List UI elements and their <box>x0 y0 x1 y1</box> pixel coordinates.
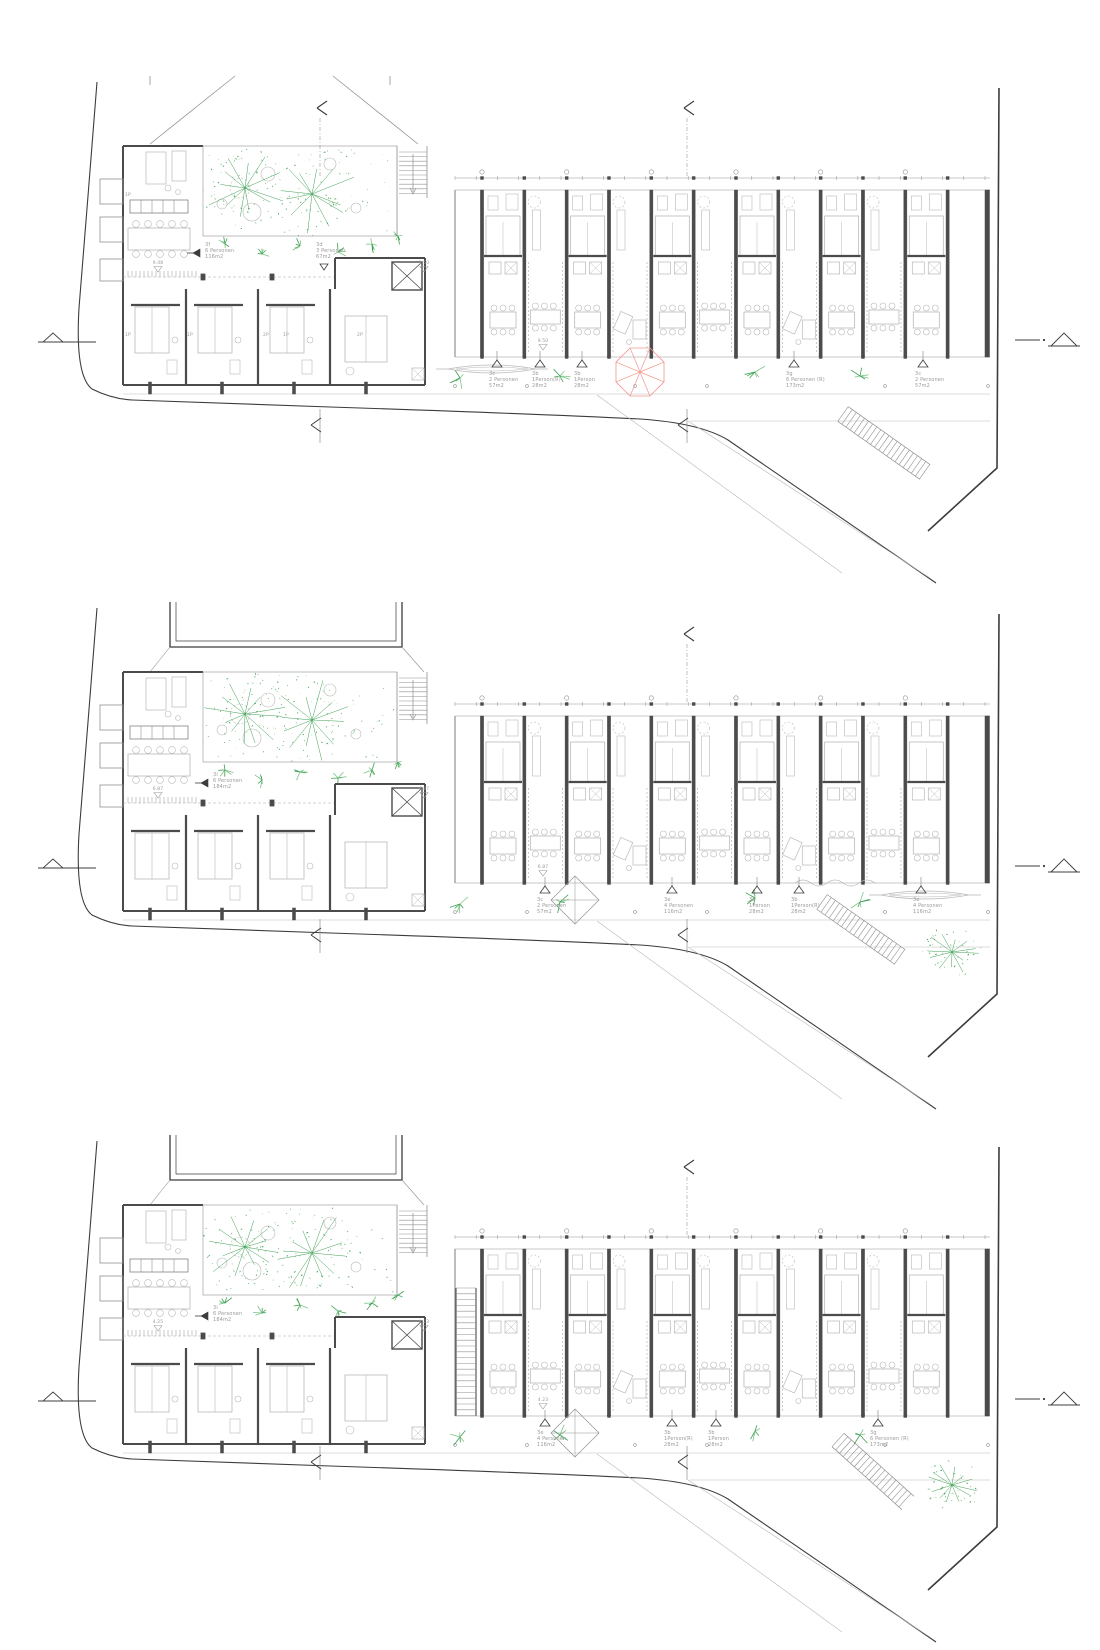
bollard <box>526 1444 529 1447</box>
table <box>913 1371 939 1387</box>
plaza-tree <box>952 949 976 952</box>
chair <box>660 305 666 311</box>
chair <box>932 329 938 335</box>
party-wall <box>946 1249 949 1416</box>
plant-stroke <box>220 770 225 776</box>
garden-speckle <box>231 756 232 757</box>
chair <box>145 777 152 784</box>
chair <box>133 221 140 228</box>
plant-stroke <box>450 1434 460 1437</box>
crossing-rung <box>858 421 868 436</box>
dresser <box>845 194 857 210</box>
garden-tree <box>294 1282 295 1283</box>
neighbor-building <box>150 602 424 672</box>
long-table <box>530 310 560 324</box>
garden-speckle <box>277 682 278 683</box>
garden-tree <box>347 1231 348 1232</box>
unit-area: 184m2 <box>213 784 231 790</box>
garden-speckle <box>372 755 373 756</box>
garden-tree <box>303 1231 312 1253</box>
garden-speckle <box>307 229 308 230</box>
neighbor-corner <box>150 1180 170 1205</box>
chair <box>720 851 726 857</box>
section-arrow-icon <box>317 101 327 108</box>
pier <box>221 382 224 394</box>
plaza-tree <box>962 971 963 972</box>
bath-fixture <box>912 788 924 800</box>
chair <box>720 325 726 331</box>
dresser <box>657 722 667 736</box>
table <box>744 838 770 854</box>
crossing-rung <box>895 1490 907 1503</box>
dresser <box>742 196 752 210</box>
chair <box>914 831 920 837</box>
crossing-rung <box>879 436 889 451</box>
balcony <box>100 217 123 242</box>
garden-speckle <box>342 1248 343 1249</box>
stone <box>351 203 361 213</box>
sofa <box>172 677 186 707</box>
crossing-rung <box>858 1457 870 1470</box>
road-edge <box>78 82 936 583</box>
bath-fixture <box>828 788 840 800</box>
grid-bubble <box>734 1229 738 1233</box>
chair <box>157 1280 164 1287</box>
grid-dot <box>777 1415 780 1418</box>
bath-fixture <box>489 1321 501 1333</box>
chair <box>871 303 877 309</box>
plant-stroke <box>460 374 463 378</box>
grid-dot <box>692 177 695 180</box>
garden-tree <box>245 188 249 210</box>
chair <box>889 829 895 835</box>
plaza-tree <box>933 1481 934 1482</box>
plant-stroke <box>294 1305 300 1306</box>
shelf <box>617 1269 625 1309</box>
garden-tree <box>272 1256 273 1257</box>
garden-speckle <box>262 680 263 681</box>
right-slab <box>455 170 990 359</box>
chair <box>830 831 836 837</box>
right-marker-dot <box>1043 339 1044 340</box>
stone <box>324 158 336 170</box>
garden-boundary <box>203 146 397 236</box>
shelf <box>532 1269 540 1309</box>
chair <box>871 1384 877 1390</box>
floor-plan-middle: 3i6 Personen184m23c2 Personen57m23e4 Per… <box>38 602 1080 1109</box>
grid-dot <box>946 356 949 359</box>
garden-tree <box>346 1256 347 1257</box>
chair <box>914 855 920 861</box>
crossing-rail <box>838 421 920 479</box>
chair <box>145 1310 152 1317</box>
grid-dot <box>819 177 822 180</box>
plant-pot <box>867 196 879 208</box>
plant-pot <box>613 196 625 208</box>
party-wall <box>777 190 780 357</box>
sideboard <box>130 726 188 739</box>
chair <box>509 855 515 861</box>
chair <box>302 1419 312 1433</box>
chair <box>181 777 188 784</box>
chair <box>509 1364 515 1370</box>
garden-tree <box>209 1241 245 1247</box>
plant-stroke <box>454 1437 460 1445</box>
garden-speckle <box>277 1253 278 1254</box>
garden-speckle <box>328 1250 329 1251</box>
garden-tree <box>317 1271 318 1272</box>
unit-area: 116m2 <box>205 254 223 260</box>
grid-dot <box>650 356 653 359</box>
chair <box>541 829 547 835</box>
right-slab <box>455 1229 990 1418</box>
elevation-value: 4.23 <box>538 1397 549 1403</box>
garden-speckle <box>341 713 342 714</box>
chair <box>576 831 582 837</box>
pier <box>270 800 274 806</box>
chair <box>532 303 538 309</box>
chair <box>181 251 188 258</box>
unit-area: 57m2 <box>489 383 504 389</box>
garden-speckle <box>366 756 367 757</box>
chair <box>754 305 760 311</box>
garden-speckle <box>386 1269 387 1270</box>
unit-area: 57m2 <box>915 383 930 389</box>
garden-tree <box>337 202 338 203</box>
chair <box>669 1388 675 1394</box>
plant-stroke <box>855 376 860 377</box>
plant-stroke <box>367 1303 372 1310</box>
grid-dot <box>607 882 610 885</box>
grid-bubble <box>649 1229 653 1233</box>
plant-stroke <box>396 236 398 240</box>
garden-speckle <box>294 165 295 166</box>
garden-tree <box>283 1251 312 1253</box>
chair <box>923 855 929 861</box>
grid-dot <box>565 1236 568 1239</box>
unit-triangle-icon <box>492 360 502 367</box>
chair <box>576 855 582 861</box>
table <box>490 1371 516 1387</box>
garden-speckle <box>373 728 374 729</box>
chair <box>594 329 600 335</box>
path-edge <box>688 947 930 1104</box>
chair <box>669 329 675 335</box>
plant-stroke <box>860 1435 867 1443</box>
lounge-chair <box>802 1379 815 1398</box>
plaza-tree <box>952 952 962 970</box>
crossing-rail <box>848 407 930 465</box>
grid-dot <box>777 882 780 885</box>
chair <box>669 855 675 861</box>
grid-dot <box>565 356 568 359</box>
garden-tree <box>327 223 328 224</box>
garden-tree <box>360 1252 361 1253</box>
shelf <box>532 210 540 250</box>
chair <box>848 855 854 861</box>
stool <box>796 340 801 345</box>
garden-tree <box>300 202 301 203</box>
stone <box>351 1262 361 1272</box>
plant-stroke <box>262 254 269 256</box>
chair <box>720 1384 726 1390</box>
bath-fixture <box>574 788 586 800</box>
garden-tree <box>354 730 355 731</box>
plant-stroke <box>398 235 402 236</box>
shelf <box>702 736 710 776</box>
table <box>829 1371 855 1387</box>
plant-stroke <box>224 764 225 770</box>
unit-area: 67m2 <box>316 254 331 260</box>
party-wall <box>904 716 907 883</box>
shelf <box>871 736 879 776</box>
plant-pot <box>613 722 625 734</box>
plant-stroke <box>257 1306 262 1313</box>
balcony <box>100 785 123 807</box>
garden-tree <box>225 714 245 723</box>
dresser <box>675 1253 687 1269</box>
garden-tree <box>287 194 312 199</box>
stool <box>346 1426 354 1434</box>
grid-dot <box>819 1415 822 1418</box>
party-wall <box>777 716 780 883</box>
chair <box>550 851 556 857</box>
garden-speckle <box>332 731 333 732</box>
chair <box>839 1364 845 1370</box>
plaza-tree <box>968 954 969 955</box>
elevation-triangle-icon <box>539 871 547 877</box>
grid-dot <box>904 356 907 359</box>
chair <box>594 831 600 837</box>
grid-dot <box>734 1415 737 1418</box>
crossing-rung <box>884 1480 896 1493</box>
chair <box>745 855 751 861</box>
grid-bubble <box>903 1229 907 1233</box>
garden-speckle <box>392 1291 393 1292</box>
garden-tree <box>341 1244 342 1245</box>
garden-tree <box>278 1253 312 1259</box>
chair <box>678 305 684 311</box>
plant-pot <box>782 722 794 734</box>
plaza-tree <box>930 938 931 939</box>
unit-triangle-icon <box>540 1419 550 1426</box>
pier <box>201 1333 205 1339</box>
bath-fixture <box>489 262 501 274</box>
plant-pot <box>528 196 540 208</box>
garden-tree <box>294 1271 295 1272</box>
crossing-rung <box>854 921 864 936</box>
crossing-rung <box>907 456 917 471</box>
chair <box>500 305 506 311</box>
chair <box>669 305 675 311</box>
grid-dot <box>734 356 737 359</box>
plant-stroke <box>300 1305 308 1308</box>
chair <box>550 1362 556 1368</box>
chair <box>889 1362 895 1368</box>
dining-table <box>128 1287 190 1309</box>
table <box>829 312 855 328</box>
long-table <box>700 310 730 324</box>
crossing-rung <box>899 450 909 465</box>
chair <box>133 777 140 784</box>
plaza-tree <box>940 1465 952 1485</box>
garden-tree <box>312 1243 342 1253</box>
elevation-triangle-icon <box>539 345 547 351</box>
garden-tree <box>296 1253 297 1254</box>
garden-tree <box>336 205 337 206</box>
grid-dot <box>523 882 526 885</box>
long-table <box>869 1369 899 1383</box>
elevation-triangle-icon <box>154 267 162 273</box>
grid-dot <box>904 703 907 706</box>
table <box>913 312 939 328</box>
garden-tree <box>254 204 255 205</box>
garden-speckle <box>279 1286 280 1287</box>
chair <box>711 1362 717 1368</box>
dresser <box>911 196 921 210</box>
garden-tree <box>262 1246 263 1247</box>
plant-stroke <box>460 378 462 389</box>
grid-dot <box>819 882 822 885</box>
chair <box>509 329 515 335</box>
bollard <box>454 911 457 914</box>
plant-pot <box>867 1255 879 1267</box>
chair <box>157 221 164 228</box>
garden-tree <box>218 182 219 183</box>
shelf <box>786 210 794 250</box>
lounge-chairs <box>783 837 803 860</box>
plaza-tree <box>933 1472 952 1485</box>
garden-speckle <box>340 173 341 174</box>
chair <box>923 305 929 311</box>
room-tag: 1P <box>283 332 289 338</box>
bath-fixture <box>658 1321 670 1333</box>
grid-dot <box>607 1415 610 1418</box>
garden-tree <box>319 1285 320 1286</box>
room-tag: 1P <box>187 332 193 338</box>
chair <box>923 1364 929 1370</box>
garden-tree <box>230 684 245 714</box>
crossing-rung <box>887 441 897 456</box>
chair <box>550 829 556 835</box>
chair <box>167 1419 177 1433</box>
garden-tree <box>292 760 293 761</box>
lounge-chair <box>613 1370 633 1393</box>
path-edge <box>688 1480 930 1637</box>
plant-stroke <box>554 1430 560 1435</box>
garden-speckle <box>307 756 308 757</box>
stool <box>165 185 171 191</box>
garden-speckle <box>313 166 314 167</box>
lounge-chair <box>783 1370 803 1393</box>
party-wall <box>523 190 526 357</box>
garden-speckle <box>241 158 242 159</box>
grid-dot <box>607 1236 610 1239</box>
plaza-tree <box>950 945 951 946</box>
sideboard <box>130 1259 188 1272</box>
grid-dot <box>650 703 653 706</box>
pier <box>293 908 296 920</box>
crossing-rung <box>919 464 929 479</box>
chair <box>500 329 506 335</box>
elevation-value: 9.50 <box>419 260 430 266</box>
grid-bubble <box>903 170 907 174</box>
plant-stroke <box>455 370 460 378</box>
grid-dot <box>650 1415 653 1418</box>
garden-tree <box>312 1220 324 1253</box>
grid-dot <box>777 1236 780 1239</box>
crossing-rung <box>862 1460 874 1473</box>
garden-tree <box>328 198 329 199</box>
section-arrow-icon <box>678 935 688 942</box>
crossing-rung <box>870 932 880 947</box>
crossing-rail <box>827 895 905 950</box>
plant-stroke <box>371 238 372 244</box>
chair <box>745 305 751 311</box>
chair <box>576 305 582 311</box>
garden-tree <box>223 166 224 167</box>
unit-area: 28m2 <box>791 909 806 915</box>
grid-dot <box>650 882 653 885</box>
chair <box>491 831 497 837</box>
dining-table <box>128 754 190 776</box>
garden-tree <box>332 203 333 204</box>
crossing-rung <box>915 462 925 477</box>
crossing-rung <box>878 938 888 953</box>
grid-dot <box>734 882 737 885</box>
crossing-rung <box>854 1453 866 1466</box>
unit-area: 116m2 <box>537 1442 555 1448</box>
unit-triangle-icon <box>535 360 545 367</box>
unit-area: 116m2 <box>913 909 931 915</box>
chair <box>660 1364 666 1370</box>
garden-tree <box>284 232 285 233</box>
garden-tree <box>231 714 245 731</box>
garden-tree <box>300 173 312 194</box>
chair <box>532 1384 538 1390</box>
floor-plans-svg: 3f6 Personen116m23d3 Personen67m23c2 Per… <box>0 0 1100 1650</box>
site-lines <box>38 608 1080 1109</box>
plaza-tree <box>952 1476 963 1485</box>
right-marker-triangle-icon <box>1051 1392 1077 1405</box>
garden-tree <box>312 177 354 194</box>
slab-end-wall <box>985 716 990 883</box>
grid-dot <box>861 1415 864 1418</box>
chair <box>167 886 177 900</box>
garden-tree <box>286 714 287 715</box>
dresser <box>657 196 667 210</box>
elevation-triangle-icon <box>154 793 162 799</box>
bollard <box>987 911 990 914</box>
pier <box>149 908 152 920</box>
plant-stroke <box>297 1298 300 1305</box>
chair <box>491 855 497 861</box>
garden-speckle <box>333 204 334 205</box>
chair <box>660 329 666 335</box>
bollard <box>884 385 887 388</box>
chair <box>550 303 556 309</box>
chair <box>702 829 708 835</box>
dresser <box>742 1255 752 1269</box>
crossing-rung <box>845 915 855 930</box>
chair <box>230 360 240 374</box>
lounge-chairs <box>783 311 803 334</box>
garden-tree <box>226 679 227 680</box>
lounge-chairs <box>783 1370 803 1393</box>
chair <box>181 221 188 228</box>
chair <box>576 329 582 335</box>
annotations: 3i6 Personen184m23c2 Personen57m23e4 Per… <box>153 772 943 915</box>
